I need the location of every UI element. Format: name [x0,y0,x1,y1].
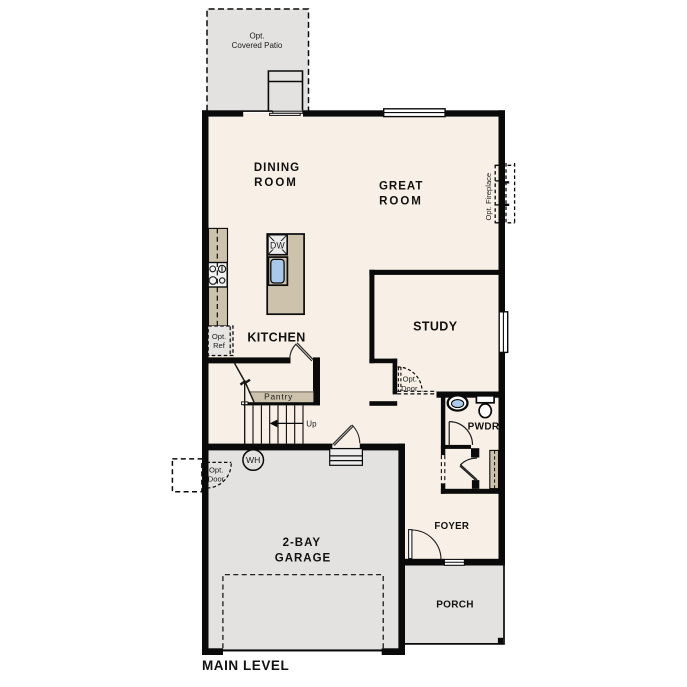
svg-text:FOYER: FOYER [434,521,469,532]
svg-text:Covered Patio: Covered Patio [232,41,283,50]
svg-text:Ref: Ref [213,341,226,350]
svg-text:KITCHEN: KITCHEN [247,330,305,344]
svg-text:Opt.: Opt. [403,375,417,384]
svg-text:Opt. Fireplace: Opt. Fireplace [484,173,493,221]
svg-text:WH: WH [246,455,260,465]
svg-text:Up: Up [306,419,317,428]
svg-text:Opt.: Opt. [209,465,223,474]
svg-text:2-BAY: 2-BAY [283,537,321,549]
svg-text:PORCH: PORCH [436,599,474,610]
svg-text:MAIN LEVEL: MAIN LEVEL [202,658,289,673]
svg-text:ROOM: ROOM [254,177,298,189]
svg-text:Pantry: Pantry [264,392,293,402]
svg-text:GREAT: GREAT [379,180,423,192]
svg-text:STUDY: STUDY [413,320,458,334]
svg-text:Door: Door [401,384,418,393]
svg-text:GARAGE: GARAGE [275,553,331,565]
svg-text:Opt.: Opt. [212,332,226,341]
svg-text:PWDR: PWDR [468,421,500,432]
svg-text:DW: DW [270,240,285,250]
svg-text:ROOM: ROOM [379,196,423,208]
svg-text:DINING: DINING [254,162,300,174]
svg-text:Opt.: Opt. [249,32,264,41]
svg-text:Door: Door [208,474,225,483]
